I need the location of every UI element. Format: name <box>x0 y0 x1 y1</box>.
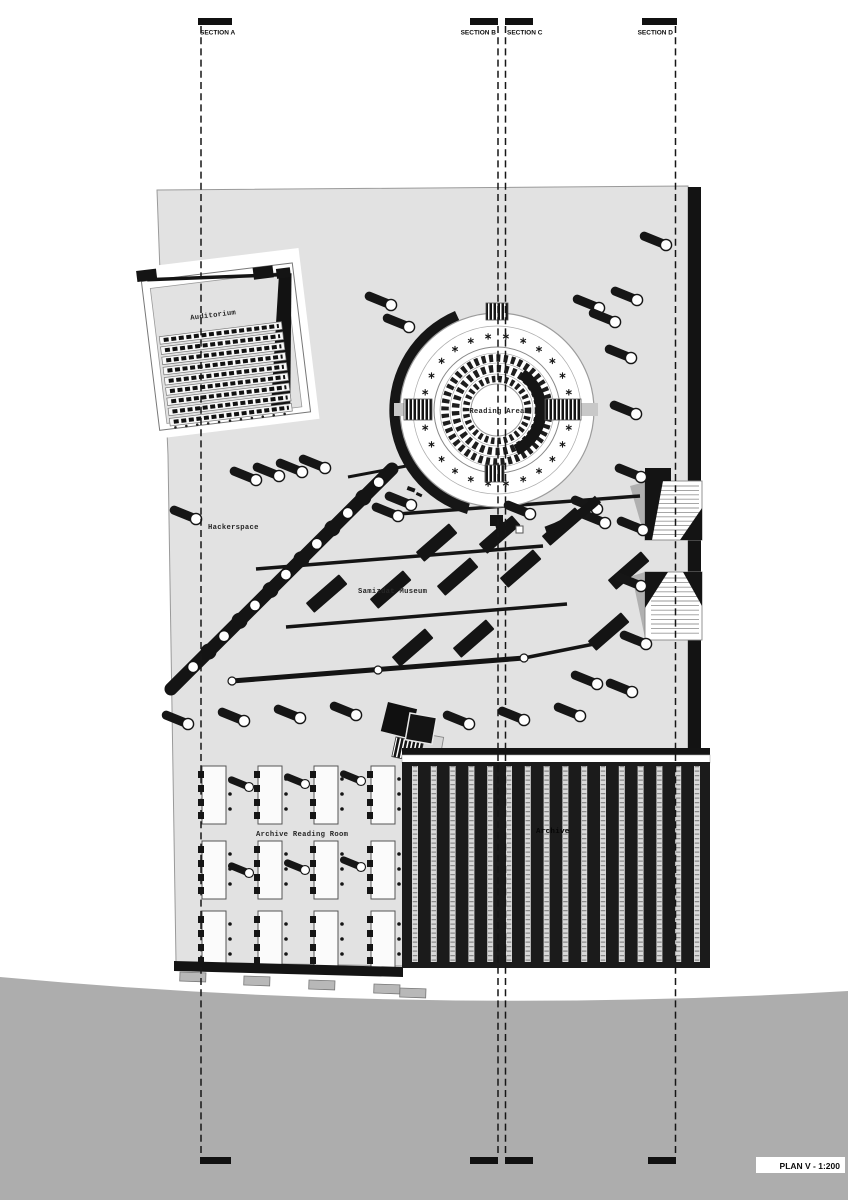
furniture-black-unit-2 <box>405 713 436 744</box>
footing <box>400 988 426 998</box>
architectural-plan-sheet: Auditorium Hackerspace Samizda <box>0 0 848 1200</box>
title-block: PLAN V - 1:200 <box>756 1157 845 1173</box>
section-label-A: SECTION A <box>200 30 235 37</box>
reading-area-bridge-east-tail <box>581 403 598 416</box>
archive-top-wall <box>402 748 710 755</box>
auditorium: Auditorium <box>128 248 320 440</box>
auditorium-door-right <box>253 265 274 279</box>
museum-column <box>228 677 236 685</box>
wall-column <box>188 662 199 673</box>
column-base <box>516 526 523 533</box>
archive-label: Archive <box>536 828 570 836</box>
section-marker-bottom-A <box>200 1157 231 1164</box>
museum-column <box>520 654 528 662</box>
reading-area-bridge-west <box>404 399 432 420</box>
museum-column <box>374 666 382 674</box>
archive: Archive <box>402 748 710 968</box>
plan-drawing: Auditorium Hackerspace Samizda <box>0 0 848 1200</box>
wall-pilaster <box>232 613 248 629</box>
footing <box>374 984 400 994</box>
wall-pilaster <box>355 490 371 506</box>
section-marker-top-D <box>642 18 677 25</box>
section-marker-top-B <box>470 18 498 25</box>
section-label-D: SECTION D <box>638 30 674 37</box>
archive-top-band <box>402 755 710 763</box>
wall-pilaster <box>201 644 217 660</box>
hackerspace-label: Hackerspace <box>208 524 259 532</box>
section-label-C: SECTION C <box>507 30 543 37</box>
section-marker-top-A <box>198 18 232 25</box>
reading-area-label: Reading Area <box>469 408 525 416</box>
wall-column <box>280 569 291 580</box>
section-marker-top-C <box>505 18 533 25</box>
wall-column <box>311 538 322 549</box>
right-wall <box>688 187 701 757</box>
section-marker-bottom-B <box>470 1157 498 1164</box>
footing <box>180 972 206 982</box>
wall-column <box>249 600 260 611</box>
wall-column <box>342 508 353 519</box>
reading-area-bridge-south <box>485 465 504 482</box>
section-marker-bottom-D <box>648 1157 676 1164</box>
stairs-upper-landing <box>645 468 671 481</box>
kiosk <box>490 515 503 526</box>
wall-column <box>219 631 230 642</box>
wall-pilaster <box>324 520 340 536</box>
archive-block <box>402 762 710 968</box>
auditorium-door-right2 <box>276 267 291 279</box>
reading-area-bridge-east <box>545 399 581 420</box>
reading-area-bridge-west-tail <box>394 403 404 416</box>
wall-column <box>373 477 384 488</box>
wall-pilaster <box>262 582 278 598</box>
section-label-B: SECTION B <box>461 30 497 37</box>
reading-area-bridge-north <box>486 303 508 320</box>
samizdat-museum-label: Samizdat Museum <box>358 588 428 596</box>
plan-title: PLAN V - 1:200 <box>780 1161 841 1171</box>
footing <box>309 980 335 990</box>
footing <box>244 976 270 986</box>
section-marker-bottom-C <box>505 1157 533 1164</box>
archive-reading-room-label: Archive Reading Room <box>256 831 349 839</box>
ground-band <box>0 977 848 1200</box>
